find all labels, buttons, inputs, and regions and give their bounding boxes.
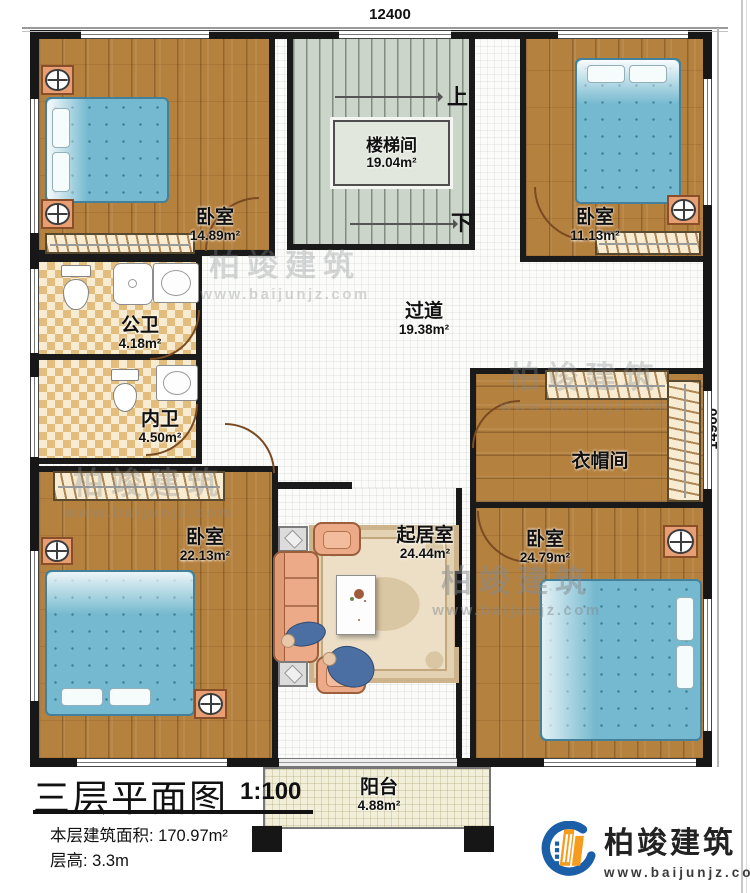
window <box>77 758 227 767</box>
floor-plan: 楼梯间 19.04m² 上 下 <box>30 30 712 767</box>
stair-down-arrow <box>350 223 454 225</box>
floor-height-text: 层高: 3.3m <box>50 847 129 871</box>
room-name: 阳台 <box>309 777 449 798</box>
sink-icon <box>156 365 198 401</box>
dimension-line-top <box>22 27 728 29</box>
wall-segment-living <box>272 482 352 489</box>
room-area: 24.44m² <box>355 546 495 561</box>
room-name: 起居室 <box>355 525 495 546</box>
room-area: 19.38m² <box>354 322 494 337</box>
floor-plan-page: 12400 14900 楼梯间 <box>0 0 750 893</box>
room-area: 14.89m² <box>145 228 285 243</box>
coffee-table <box>336 575 376 635</box>
room-area: 4.88m² <box>309 798 449 813</box>
window <box>30 99 39 233</box>
column-post <box>252 826 282 852</box>
side-table <box>278 661 308 687</box>
room-name: 卧室 <box>145 207 285 228</box>
room-label-balcony: 阳台 4.88m² <box>309 777 449 813</box>
room-name: 过道 <box>354 301 494 322</box>
brand-logo: 柏竣建筑 www.baijunjz.com <box>540 818 750 880</box>
nightstand-lamp-icon <box>667 195 700 225</box>
window <box>30 377 39 457</box>
bed <box>45 97 169 203</box>
room-area: 4.18m² <box>70 336 210 351</box>
bed <box>45 570 195 716</box>
toilet-icon <box>111 369 139 411</box>
window <box>558 30 688 39</box>
tv <box>455 571 462 647</box>
window <box>339 30 451 39</box>
window <box>544 758 696 767</box>
stair-up-label: 上 <box>447 81 468 111</box>
sink-icon <box>153 263 199 303</box>
armchair <box>313 522 361 556</box>
bed <box>540 579 702 741</box>
page-frame-line <box>741 0 743 893</box>
room-area: 4.50m² <box>90 430 230 445</box>
room-label-bath-private: 内卫 4.50m² <box>90 409 230 445</box>
closet <box>545 370 669 400</box>
room-name: 卧室 <box>475 529 615 550</box>
room-label-bath-public: 公卫 4.18m² <box>70 315 210 351</box>
nightstand-lamp-icon <box>41 65 74 95</box>
floor-area-text: 本层建筑面积: 170.97m² <box>50 822 228 846</box>
room-label-stair-hall: 楼梯间 19.04m² <box>366 136 417 170</box>
room-label-hallway: 过道 19.38m² <box>354 301 494 337</box>
dimension-top: 12400 <box>340 6 440 23</box>
window <box>703 79 712 205</box>
room-area: 19.04m² <box>366 155 417 170</box>
window <box>703 599 712 731</box>
room-label-bedroom-top-right: 卧室 11.13m² <box>525 207 665 243</box>
room-label-living: 起居室 24.44m² <box>355 525 495 561</box>
room-label-bedroom-top-left: 卧室 14.89m² <box>145 207 285 243</box>
window <box>30 551 39 701</box>
side-table <box>278 526 308 552</box>
room-name: 卧室 <box>525 207 665 228</box>
nightstand-lamp-icon <box>41 537 73 565</box>
bed <box>575 58 681 204</box>
window <box>81 30 209 39</box>
brand-name: 柏竣建筑 <box>604 818 750 862</box>
stair-down-label: 下 <box>451 207 472 237</box>
page-frame-line-2 <box>746 0 747 893</box>
closet <box>667 380 701 502</box>
room-label-cloakroom: 衣帽间 <box>530 451 670 472</box>
column-post <box>464 826 494 852</box>
brand-logo-icon <box>540 821 596 877</box>
door-arc <box>225 423 275 473</box>
room-label-bedroom-bottom-right: 卧室 24.79m² <box>475 529 615 565</box>
wardrobe <box>53 471 225 501</box>
room-area: 22.13m² <box>135 548 275 563</box>
title-underline <box>33 810 313 814</box>
room-label-bedroom-bottom-left: 卧室 22.13m² <box>135 527 275 563</box>
stair-up-arrow <box>335 96 439 98</box>
room-area: 24.79m² <box>475 550 615 565</box>
room-name: 公卫 <box>70 315 210 336</box>
plan-scale: 1:100 <box>240 778 301 806</box>
balcony-sliding-door <box>279 758 457 767</box>
shower-icon <box>113 263 153 305</box>
room-name: 内卫 <box>90 409 230 430</box>
toilet-icon <box>61 265 91 311</box>
room-area: 11.13m² <box>525 228 665 243</box>
room-name: 卧室 <box>135 527 275 548</box>
stair-hall-label-box: 楼梯间 19.04m² <box>333 120 450 186</box>
nightstand-lamp-icon <box>194 689 227 719</box>
room-name: 楼梯间 <box>366 136 417 155</box>
window <box>30 269 39 353</box>
room-name: 衣帽间 <box>530 451 670 472</box>
dimension-line-right <box>717 28 719 767</box>
nightstand-lamp-icon <box>41 199 74 229</box>
window <box>703 391 712 489</box>
nightstand-lamp-icon <box>663 525 698 558</box>
brand-url: www.baijunjz.com <box>604 865 750 880</box>
